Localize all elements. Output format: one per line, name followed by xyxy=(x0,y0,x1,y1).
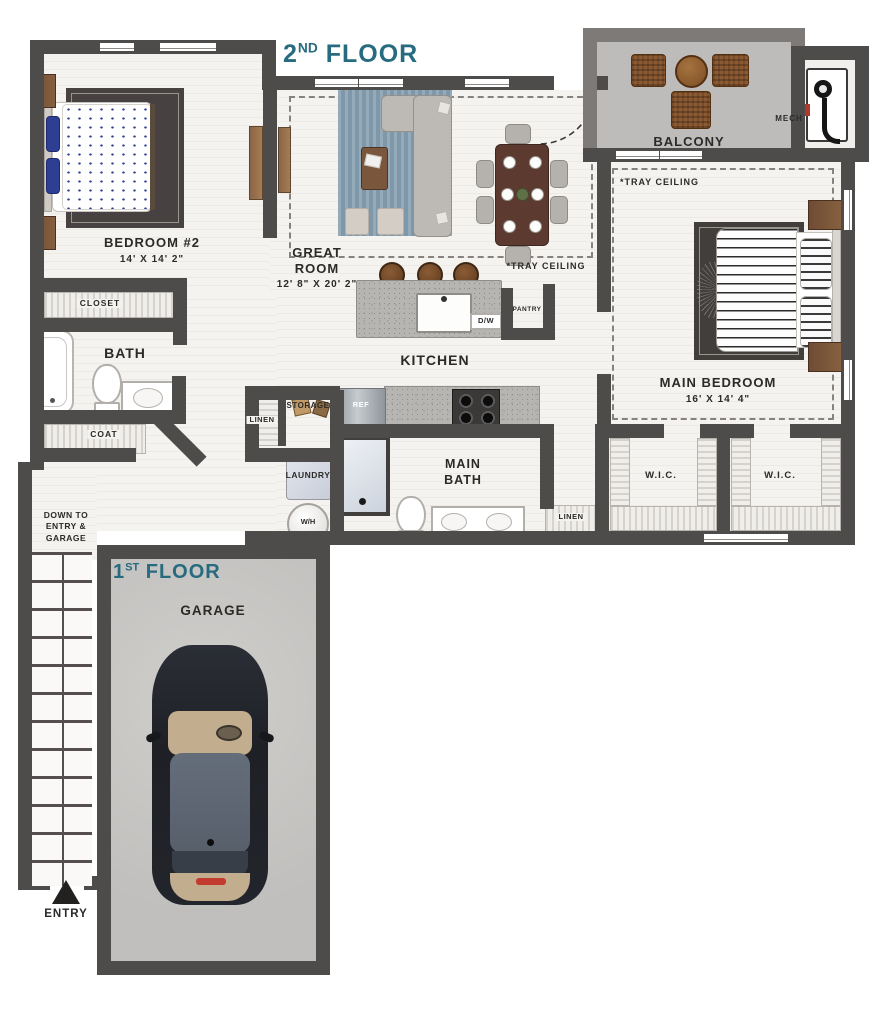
window xyxy=(842,360,854,400)
window xyxy=(100,41,134,53)
vanity-basin-2 xyxy=(486,513,512,531)
wall-segment xyxy=(172,376,186,424)
wall-segment xyxy=(543,284,555,340)
wall-segment xyxy=(540,424,554,509)
down-to-entry-label: DOWN TO ENTRY & GARAGE xyxy=(34,510,98,544)
wall-segment xyxy=(330,390,344,545)
wall-segment xyxy=(30,318,187,332)
wall-segment xyxy=(609,424,664,438)
car-roof xyxy=(170,753,250,853)
balcony-bench xyxy=(671,91,711,129)
main-bath-label-line1: MAIN xyxy=(445,458,481,472)
window xyxy=(616,149,659,161)
garage-label: GARAGE xyxy=(180,604,245,619)
window xyxy=(160,41,216,53)
window xyxy=(660,149,702,161)
bath-toilet-bowl xyxy=(92,364,122,404)
wall-segment xyxy=(330,424,554,438)
window xyxy=(704,532,788,544)
garage-wall xyxy=(97,545,111,975)
place-setting xyxy=(501,188,514,201)
wic1-label: W.I.C. xyxy=(645,471,677,481)
coat-label: COAT xyxy=(87,430,120,439)
balcony-wall xyxy=(583,28,597,162)
main-bath-label-line2: BATH xyxy=(444,474,482,488)
bath-label: BATH xyxy=(104,346,146,361)
bedroom2-duvet xyxy=(62,104,152,210)
water-heater-label: W/H xyxy=(301,518,316,526)
dining-chair xyxy=(476,196,494,224)
wall-segment xyxy=(791,46,805,162)
bedroom2-dresser xyxy=(249,126,263,200)
balcony-chair-1 xyxy=(631,54,666,87)
wall-segment xyxy=(245,386,340,400)
wall-segment xyxy=(262,76,554,90)
wall-segment xyxy=(501,288,513,340)
window xyxy=(359,77,403,89)
wall-segment xyxy=(252,448,340,462)
floorplan-canvas: 2ND FLOOR 1ST FLOOR BEDROOM #2 14' X 14'… xyxy=(0,0,877,1024)
kitchen-label: KITCHEN xyxy=(400,353,469,368)
wic1-hanging-bottom xyxy=(610,506,717,531)
balcony-wall xyxy=(583,28,805,42)
ottoman-2 xyxy=(377,208,404,235)
ottoman-1 xyxy=(345,208,369,235)
wall-segment xyxy=(717,424,730,545)
wall-segment xyxy=(730,424,754,438)
dining-chair xyxy=(550,160,568,188)
wall-segment xyxy=(700,424,717,438)
vanity-basin-1 xyxy=(441,513,467,531)
dishwasher-label: D/W xyxy=(478,317,494,325)
wall-segment xyxy=(30,40,276,54)
sink-faucet xyxy=(441,296,447,302)
coffee-table xyxy=(361,147,388,190)
wall-segment xyxy=(30,40,44,470)
closet-label: CLOSET xyxy=(77,299,123,308)
wall-segment xyxy=(263,90,277,238)
wall-segment xyxy=(173,278,187,345)
main-bed-pillow-2 xyxy=(800,296,832,348)
shower-head xyxy=(359,498,366,505)
wall-segment xyxy=(513,328,543,340)
wic1-hanging-right xyxy=(697,438,717,506)
wall-segment xyxy=(30,448,136,462)
entry-arrow-icon xyxy=(52,880,80,904)
window xyxy=(315,77,358,89)
wic2-hanging-right xyxy=(821,438,841,506)
bedroom2-pillow-2 xyxy=(46,158,60,194)
wall-segment xyxy=(855,46,869,162)
great-room-dims: 12' 8" X 20' 2" xyxy=(277,279,357,290)
media-console xyxy=(278,127,291,193)
pantry-label: PANTRY xyxy=(513,306,542,313)
bedroom2-dims: 14' X 14' 2" xyxy=(120,254,184,265)
linen-left-label: LINEN xyxy=(247,416,278,424)
stove-cooktop xyxy=(452,389,500,427)
main-nightstand-bottom xyxy=(808,342,842,372)
dining-chair xyxy=(476,160,494,188)
dining-centerpiece xyxy=(516,188,529,201)
mech-pipe-coil xyxy=(814,80,832,98)
mech-valve xyxy=(805,104,810,116)
bathtub-drain xyxy=(50,398,55,403)
main-bed-duvet xyxy=(716,228,798,352)
dining-chair xyxy=(550,196,568,224)
garage-wall xyxy=(97,961,330,975)
mech-label: MECH xyxy=(775,115,803,124)
balcony-table xyxy=(675,55,708,88)
balcony-chair-2 xyxy=(712,54,749,87)
wic1-hanging-left xyxy=(610,438,630,506)
main-bed-pillow-1 xyxy=(800,238,832,290)
first-floor-title: 1ST FLOOR xyxy=(113,561,221,584)
wall-segment xyxy=(278,392,286,446)
stairs xyxy=(32,552,92,886)
laundry-label: LAUNDRY xyxy=(286,471,331,480)
wall-segment xyxy=(790,424,841,438)
place-setting xyxy=(529,156,542,169)
window xyxy=(465,77,509,89)
main-bath-toilet-bowl xyxy=(396,496,426,534)
wall-segment xyxy=(30,278,187,292)
car-brake-light xyxy=(196,878,226,885)
wall-segment xyxy=(595,424,609,545)
bedroom2-label: BEDROOM #2 xyxy=(104,236,200,250)
balcony-label: BALCONY xyxy=(653,135,724,149)
dining-chair xyxy=(505,124,531,144)
wall-segment xyxy=(18,462,32,890)
refrigerator-label: REF xyxy=(353,401,370,409)
wic2-hanging-left xyxy=(731,438,751,506)
wall-segment xyxy=(597,162,611,312)
car xyxy=(152,645,268,905)
window xyxy=(842,190,854,230)
main-nightstand-top xyxy=(808,200,842,230)
car-rear-window xyxy=(172,851,248,875)
wall-segment xyxy=(597,76,608,90)
main-bedroom-label: MAIN BEDROOM xyxy=(660,376,777,390)
garage-wall xyxy=(316,545,330,975)
bedroom2-footboard xyxy=(150,104,155,210)
place-setting xyxy=(531,188,544,201)
linen-right-label: LINEN xyxy=(556,513,587,521)
place-setting xyxy=(503,156,516,169)
tray-ceiling-label-dining: *TRAY CEILING xyxy=(506,262,585,272)
car-steering-wheel xyxy=(216,725,242,741)
great-room-label-line2: ROOM xyxy=(295,262,339,276)
place-setting xyxy=(529,220,542,233)
wall-segment xyxy=(597,374,611,424)
main-bedroom-dims: 16' X 14' 4" xyxy=(686,394,750,405)
bath-basin xyxy=(133,388,163,408)
storage-label: STORAGE xyxy=(287,402,330,411)
bedroom2-pillow-1 xyxy=(46,116,60,152)
wic2-hanging-bottom xyxy=(731,506,841,531)
sofa-pillow-2 xyxy=(435,211,449,225)
wic2-label: W.I.C. xyxy=(764,471,796,481)
place-setting xyxy=(503,220,516,233)
tray-ceiling-label-main-bedroom: *TRAY CEILING xyxy=(620,178,699,188)
great-room-label-line1: GREAT xyxy=(292,246,342,260)
second-floor-title: 2ND FLOOR xyxy=(283,40,418,69)
entry-label: ENTRY xyxy=(44,908,88,921)
car-antenna xyxy=(207,839,214,846)
garage-wall xyxy=(97,545,330,559)
